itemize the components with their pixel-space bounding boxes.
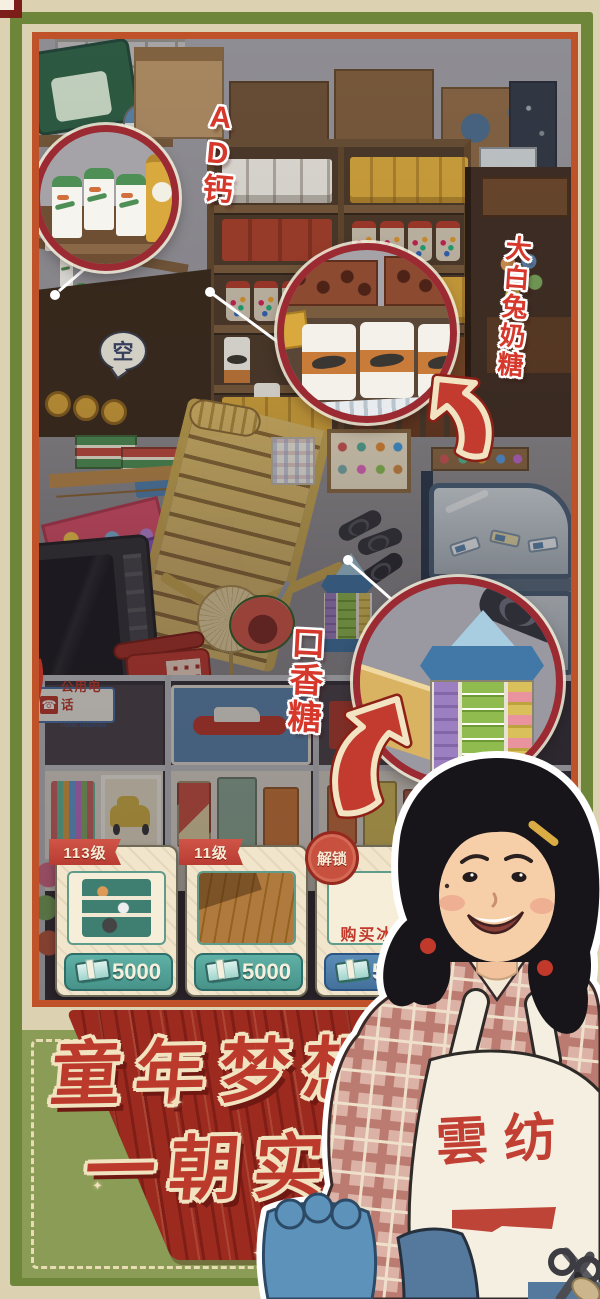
hanging-pens [51, 781, 95, 845]
level-ribbon: 113级 [49, 839, 121, 865]
empty-speech-bubble: 空 [99, 331, 147, 371]
unlock-card-fridge[interactable]: 购买冰箱 解锁 5000 [315, 845, 438, 997]
yellow-can [101, 399, 127, 425]
candy-jar [436, 221, 460, 261]
card-image [67, 871, 166, 945]
wall-chart [271, 437, 315, 485]
stationery-box [177, 781, 211, 847]
price-button[interactable]: 5000 [64, 953, 173, 991]
label-ad-calcium: AD钙 [191, 99, 244, 207]
price-value: 5000 [242, 959, 291, 985]
unlock-badge: 解锁 [305, 831, 359, 885]
white-rabbit-bag [360, 322, 414, 398]
milk-bottle [52, 176, 82, 238]
money-icon [205, 959, 240, 985]
yellow-can [73, 395, 99, 421]
sparkle-icon: ✦ [330, 1150, 339, 1163]
phone-sign-cn: 公用电话 [61, 680, 102, 712]
phone-sign-en: Public Telephone [61, 723, 107, 729]
label-gum: 口香糖 [276, 624, 331, 737]
unlock-label: 解锁 [317, 848, 347, 869]
oil-bottle [146, 154, 179, 242]
upgrade-card-tables[interactable]: 11级 5000 [185, 845, 308, 997]
public-phone-sign: ☎ 公用电话 Public Telephone [35, 687, 115, 723]
noodle-packs [222, 159, 332, 203]
upgrade-card-shelf[interactable]: 113级 5000 [55, 845, 178, 997]
arrow-to-white-rabbit [415, 377, 499, 461]
price-button[interactable]: 5000 [194, 953, 303, 991]
slogan-line-2: 一朝实现 [81, 1109, 426, 1216]
snack-bags [350, 157, 468, 203]
sparkle-icon: ✦ [168, 1092, 184, 1115]
callout-ad-calcium [33, 125, 179, 271]
money-icon [335, 959, 370, 985]
sparkle-icon: ✦ [92, 1178, 103, 1194]
buy-fridge-label: 购买冰箱 [317, 921, 436, 945]
phone-icon: ☎ [40, 696, 58, 714]
price-value: 5000 [372, 959, 421, 985]
slogan-line-1: 童年梦想 [47, 1013, 392, 1120]
red-snack-boxes [222, 219, 332, 261]
money-icon [75, 959, 110, 985]
candy-jar [254, 281, 278, 321]
level-ribbon: 11级 [179, 839, 243, 865]
stacked-boxes [481, 177, 569, 217]
candy-jar [226, 281, 250, 321]
white-rabbit-bag [224, 337, 250, 383]
level-label: 11级 [194, 842, 228, 863]
white-rabbit-bag [302, 324, 356, 400]
arrow-to-gum [325, 693, 437, 817]
milk-bottle [116, 174, 146, 236]
yellow-can [45, 391, 71, 417]
picture-board [327, 429, 411, 493]
sparkle-icon: ✦ [410, 1040, 423, 1060]
level-label: 113级 [63, 842, 106, 863]
corner-ornament [0, 0, 22, 18]
empty-label: 空 [113, 336, 134, 366]
price-button[interactable]: 5000 [324, 953, 433, 991]
sparkle-icon: ✦ [252, 1244, 266, 1264]
stationery-box [263, 787, 299, 847]
price-value: 5000 [112, 959, 161, 985]
milk-bottle [84, 168, 114, 230]
card-image [197, 871, 296, 945]
game-ad-poster: 空 [0, 0, 600, 1299]
shop-scene: 空 [32, 32, 578, 1007]
